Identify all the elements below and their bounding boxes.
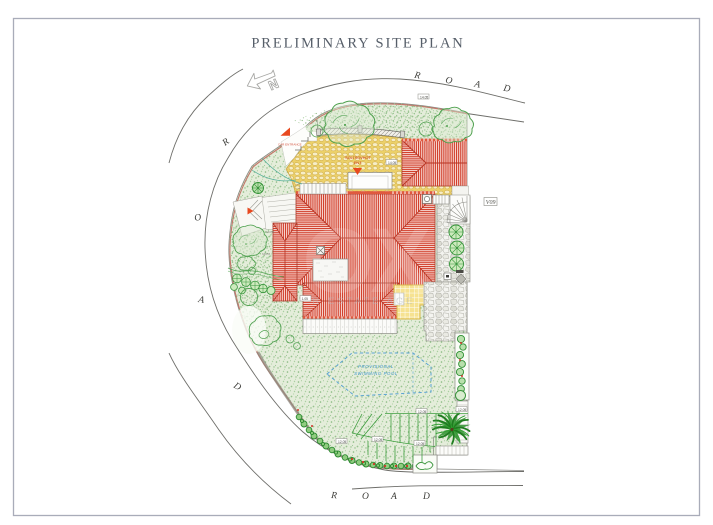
svg-text:14.05: 14.05: [420, 96, 428, 100]
svg-text:A: A: [390, 492, 397, 502]
svg-text:12.05: 12.05: [374, 438, 382, 442]
svg-text:SOLTSOVHOT: SOLTSOVHOT: [345, 156, 371, 160]
svg-text:ENT.: ENT.: [354, 161, 362, 165]
svg-text:V09: V09: [486, 200, 496, 206]
svg-text:O: O: [362, 492, 369, 502]
svg-text:PRELIMINARY SITE PLAN: PRELIMINARY SITE PLAN: [251, 36, 464, 52]
svg-text:12.05: 12.05: [338, 440, 346, 444]
svg-text:14.05: 14.05: [388, 161, 396, 165]
svg-text:64055: 64055: [266, 230, 275, 234]
svg-text:R: R: [330, 491, 338, 501]
svg-text:12.05: 12.05: [416, 442, 424, 446]
svg-text:SWIMMING POOL: SWIMMING POOL: [354, 371, 398, 376]
svg-text:12.05: 12.05: [458, 408, 466, 412]
svg-text:12.05: 12.05: [418, 410, 426, 414]
svg-text:D: D: [422, 492, 430, 502]
svg-text:CAR ENTRANCE: CAR ENTRANCE: [278, 143, 302, 147]
svg-text:R ESTATE AGE: R ESTATE AGE: [312, 296, 415, 307]
svg-text:PROVISIONAL: PROVISIONAL: [358, 364, 394, 369]
svg-text:64055: 64055: [262, 252, 271, 256]
